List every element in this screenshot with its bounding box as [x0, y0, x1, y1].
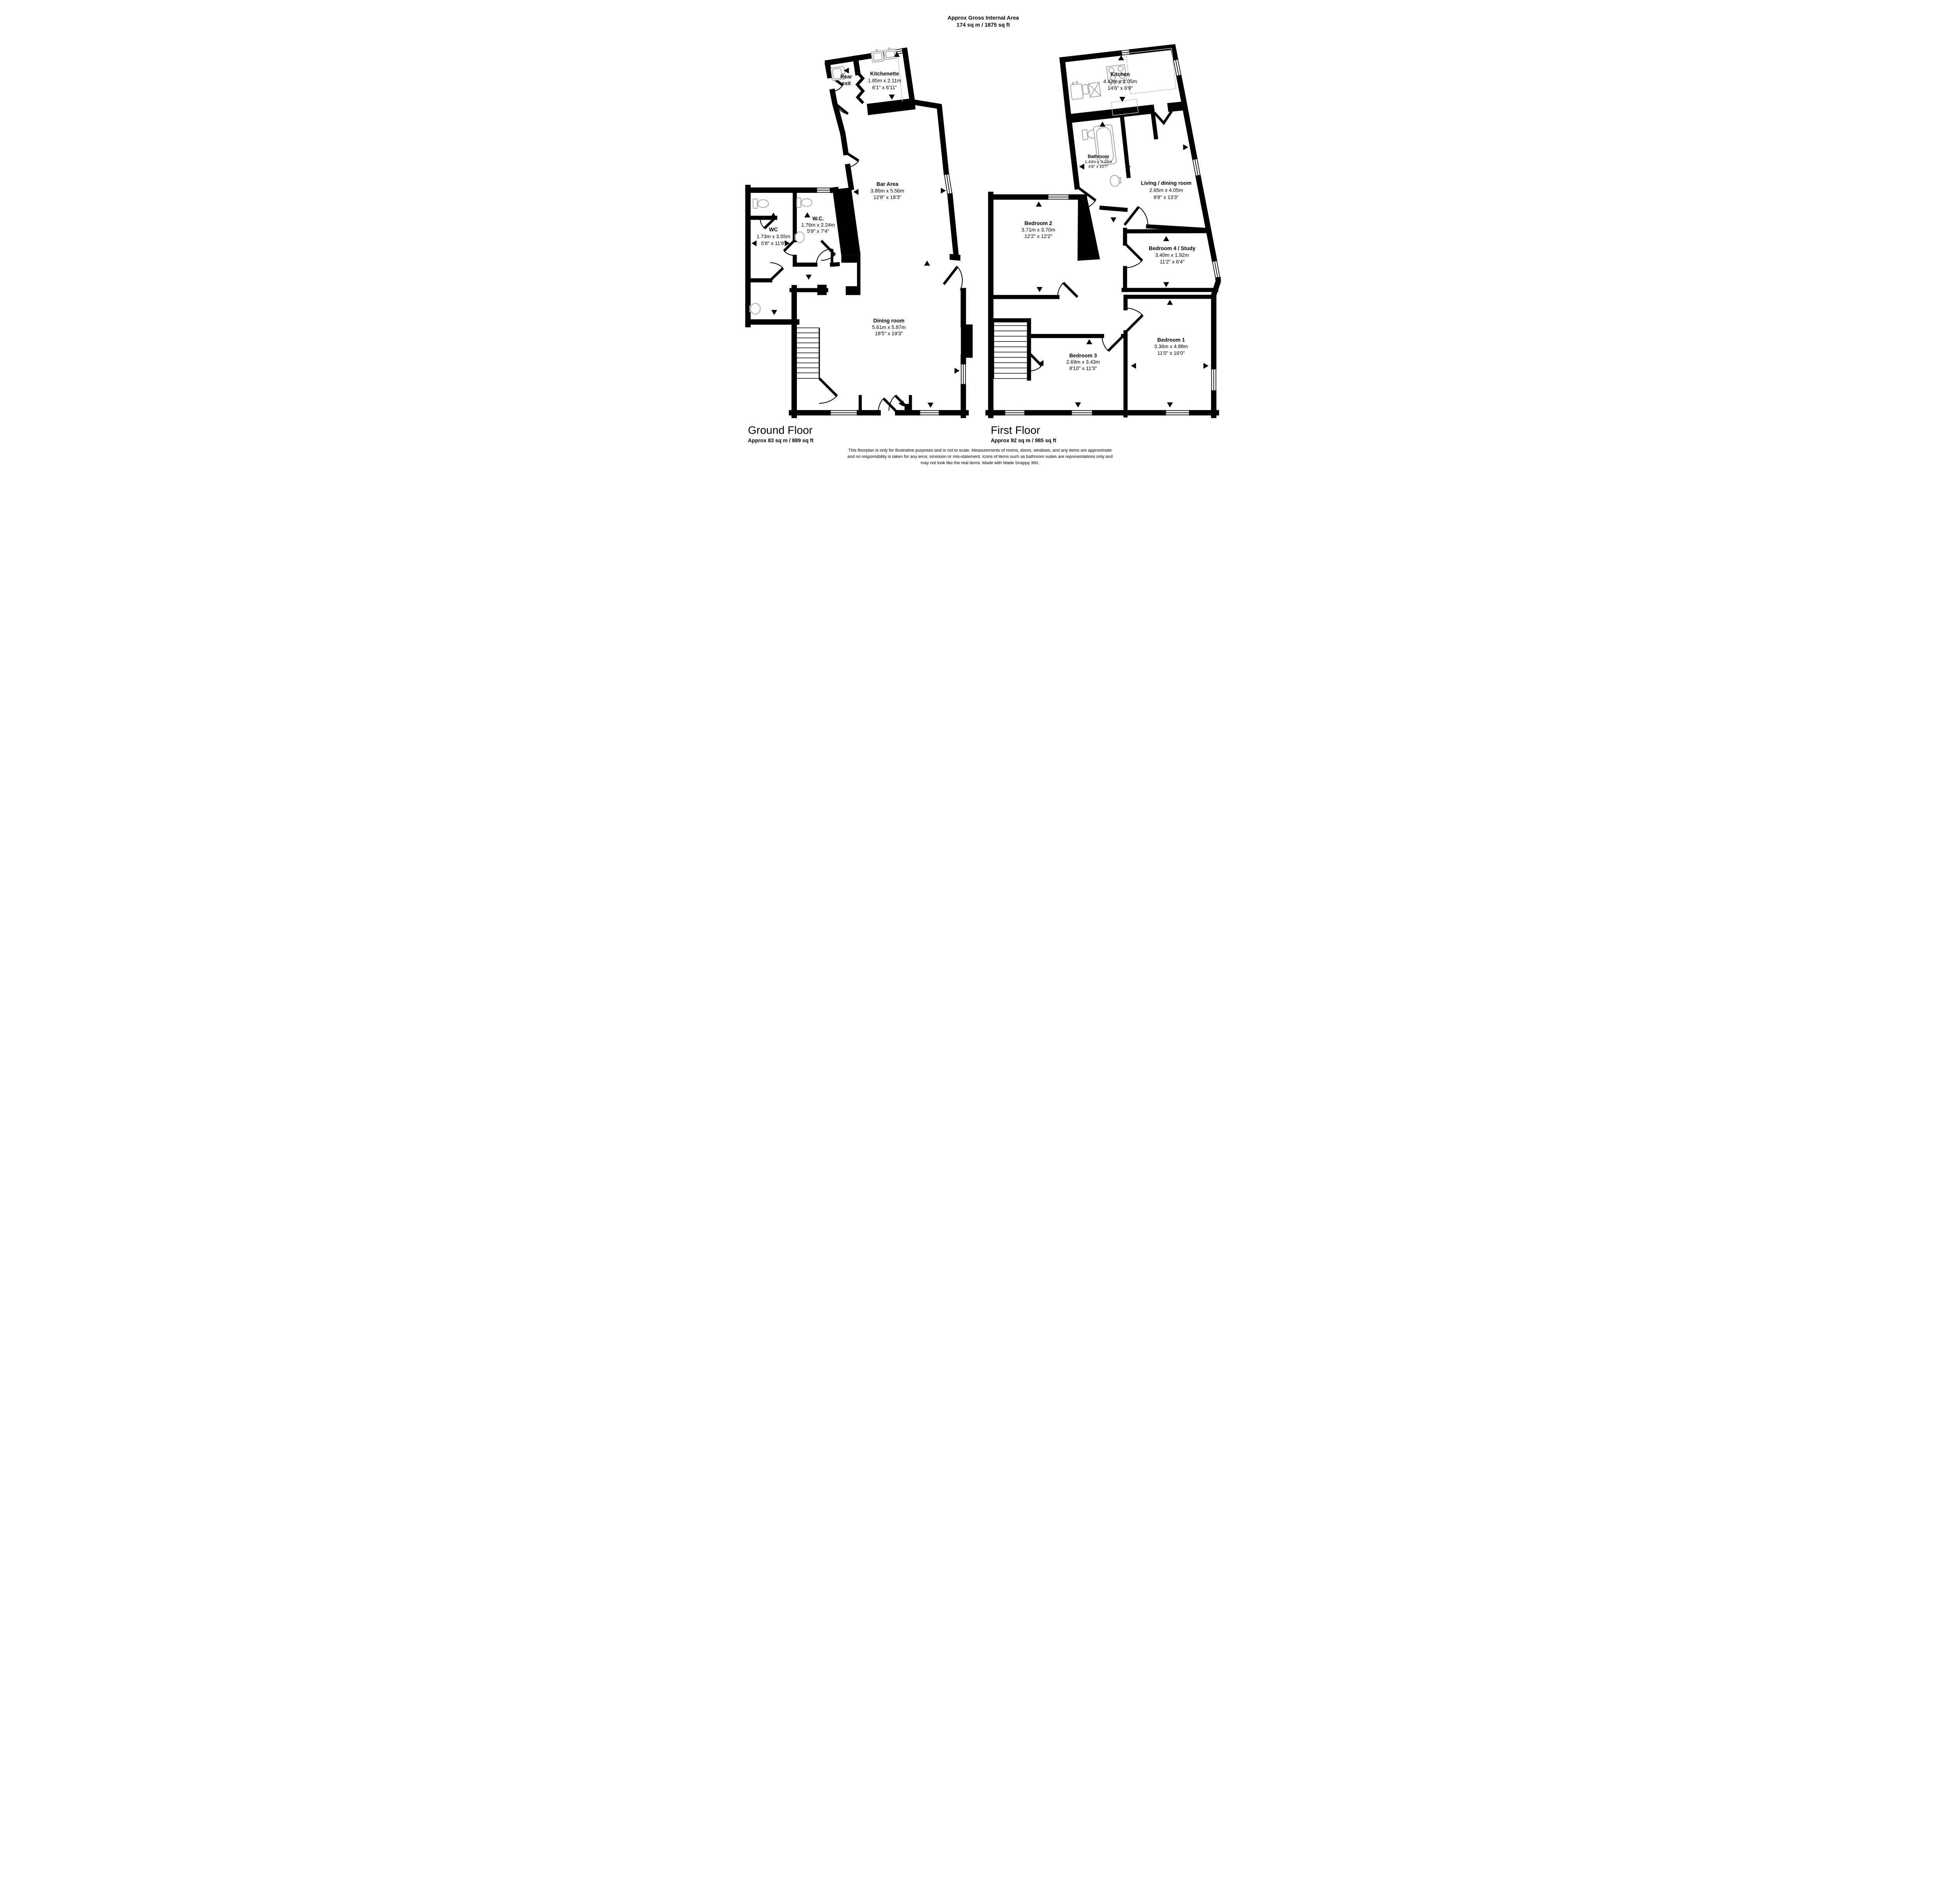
ground-door-arcs: [760, 85, 962, 412]
room-dims-bar-metric: 3.86m x 5.56m: [871, 188, 904, 194]
room-dims-bathroom-metric: 1.43m x 3.22m: [1085, 160, 1112, 164]
first-floor-plan: Kitchen 4.42m x 2.05m 14'6" x 6'9" Bathr…: [988, 47, 1220, 443]
disclaimer-line3: may not look like the real items. Made w…: [921, 461, 1040, 465]
floorplan-image: Approx Gross Internal Area 174 sq m / 18…: [715, 0, 1245, 470]
room-label-rear-exit2: exit: [842, 80, 851, 86]
room-dims-bedroom4-imperial: 11'2" x 6'4": [1160, 259, 1184, 265]
room-dims-bedroom1-metric: 3.36m x 4.88m: [1154, 343, 1188, 349]
room-label-bathroom: Bathroom: [1088, 154, 1109, 159]
room-dims-dining-metric: 5.61m x 5.87m: [872, 324, 906, 330]
disclaimer-line2: and no responsibility is taken for any e…: [848, 454, 1113, 459]
first-floor-caption: First Floor Approx 92 sq m / 985 sq ft: [991, 424, 1057, 443]
stairs: [994, 320, 1029, 379]
room-label-wc: WC: [769, 227, 778, 233]
basin-icon: [795, 232, 804, 243]
first-floor-area: Approx 92 sq m / 985 sq ft: [991, 438, 1057, 443]
room-dims-bar-imperial: 12'8" x 18'3": [873, 194, 902, 200]
basin-icon: [1110, 174, 1122, 187]
ground-floor-plan: Rear exit Kitchenette 1.85m x 2.11m 6'1"…: [748, 47, 973, 443]
room-dims-bathroom-imperial: 4'8" x 10'7": [1088, 164, 1109, 169]
room-label-kitchen: Kitchen: [1111, 71, 1130, 77]
gross-internal-area-title: Approx Gross Internal Area: [947, 15, 1019, 21]
room-dims-wc-imperial: 5'8" x 11'8": [761, 240, 786, 246]
disclaimer: This floorplan is only for illustrative …: [848, 448, 1113, 465]
room-dims-kitchen-imperial: 14'6" x 6'9": [1107, 85, 1132, 91]
room-dims-living-metric: 2.65m x 4.05m: [1149, 187, 1183, 193]
ground-floor-caption: Ground Floor Approx 83 sq m / 889 sq ft: [748, 424, 814, 443]
room-label-living-dining: Living / dining room: [1141, 180, 1192, 186]
room-dims-bedroom4-metric: 3.40m x 1.92m: [1155, 252, 1189, 258]
room-label-bedroom2: Bedroom 2: [1024, 220, 1052, 226]
room-dims-bedroom2-metric: 3.71m x 3.70m: [1022, 227, 1055, 233]
kitchenette-counter-line: [898, 53, 903, 102]
basin-icon: [750, 303, 760, 314]
room-dims-dining-imperial: 18'5" x 19'3": [875, 331, 903, 336]
room-dims-bedroom3-metric: 2.69m x 3.43m: [1066, 359, 1100, 365]
room-dims-living-imperial: 8'8" x 13'3": [1154, 194, 1179, 200]
header: Approx Gross Internal Area 174 sq m / 18…: [947, 15, 1019, 28]
room-dims-bedroom1-imperial: 11'0" x 16'0": [1157, 350, 1185, 356]
ground-floor-title: Ground Floor: [748, 424, 813, 436]
room-dims-bedroom2-imperial: 12'2" x 12'2": [1024, 233, 1053, 239]
toilet-icon: [797, 198, 812, 207]
room-label-bedroom3: Bedroom 3: [1069, 352, 1097, 358]
ground-wall-blocks: [817, 98, 973, 411]
room-dims-wc-metric: 1.73m x 3.55m: [757, 234, 790, 240]
room-label-bar-area: Bar Area: [877, 181, 898, 187]
kitchenette-zigzag-wall: [857, 73, 863, 103]
room-dims-kitchenette-metric: 1.85m x 2.11m: [868, 78, 901, 84]
room-dims-wc2-imperial: 5'9" x 7'4": [807, 228, 829, 234]
stairs: [795, 328, 819, 378]
toilet-icon: [753, 199, 768, 209]
room-label-kitchenette: Kitchenette: [870, 71, 899, 77]
room-dims-wc2-metric: 1.76m x 2.24m: [801, 222, 835, 228]
room-dims-kitchen-metric: 4.42m x 2.05m: [1103, 78, 1137, 84]
kitchen-sink-icon: [1070, 79, 1101, 100]
room-label-rear-exit: Rear: [840, 74, 853, 80]
room-dims-bedroom3-imperial: 8'10" x 11'3": [1069, 365, 1097, 371]
room-label-dining: Dining room: [873, 318, 905, 324]
ground-floor-area: Approx 83 sq m / 889 sq ft: [748, 438, 814, 443]
gross-internal-area-value: 174 sq m / 1875 sq ft: [956, 22, 1010, 28]
room-dims-kitchenette-imperial: 6'1" x 6'11": [872, 85, 897, 91]
room-label-bedroom4: Bedroom 4 / Study: [1149, 245, 1196, 251]
disclaimer-line1: This floorplan is only for illustrative …: [848, 448, 1112, 453]
floorplan-page: Approx Gross Internal Area 174 sq m / 18…: [715, 0, 1245, 470]
room-label-wc2: W.C.: [812, 216, 824, 222]
room-label-bedroom1: Bedroom 1: [1157, 337, 1185, 343]
first-floor-title: First Floor: [991, 424, 1040, 436]
